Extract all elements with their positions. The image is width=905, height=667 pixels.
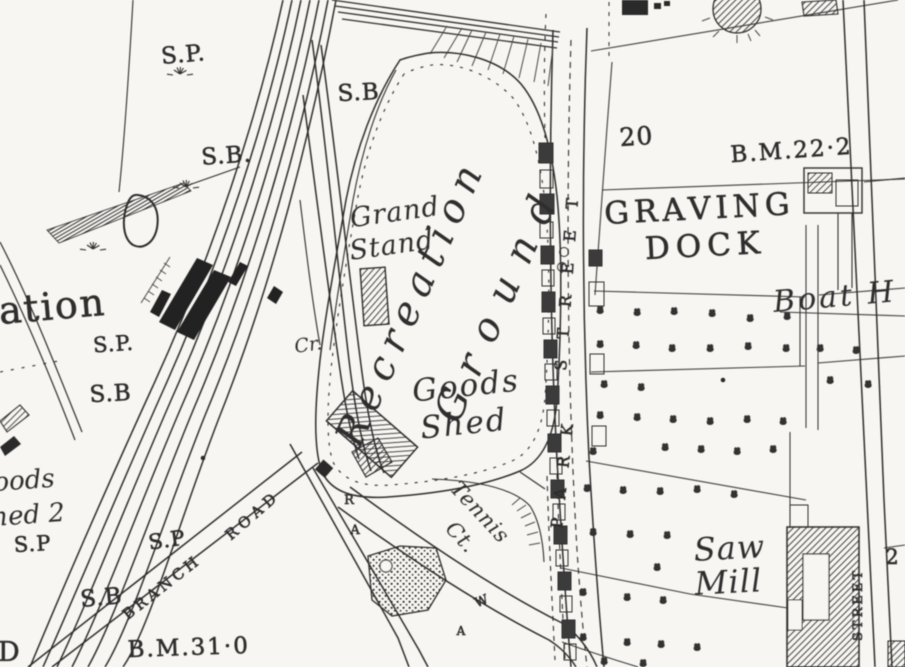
tree-symbol — [747, 314, 754, 322]
tree-symbol — [633, 341, 640, 349]
label-goods-shed2-line1: oods — [0, 464, 56, 498]
tree-symbol — [597, 411, 604, 419]
label-plot-number-2: 2 — [885, 545, 898, 569]
label-station-name-fragment: ation — [0, 280, 108, 333]
label-road-letter-a1: A — [349, 523, 360, 538]
tree-symbol — [853, 346, 860, 354]
label-crane-abbrev: Cr. — [293, 332, 323, 358]
tree-symbol — [707, 417, 714, 425]
tree-symbol — [865, 380, 872, 388]
label-bm-31: B.M.31·0 — [127, 633, 250, 663]
tree-symbol — [584, 484, 591, 492]
tree-symbol — [694, 485, 701, 493]
tree-symbol — [624, 638, 631, 646]
tree-symbol — [654, 563, 661, 571]
tree-symbol — [770, 445, 777, 453]
label-sb-1: S.B. — [200, 141, 252, 170]
tree-symbol — [620, 486, 627, 494]
tree-symbol — [709, 309, 716, 317]
tree-symbol — [707, 344, 714, 352]
tree-symbol — [657, 487, 664, 495]
tree-symbol — [658, 640, 665, 648]
tree-symbol — [664, 531, 671, 539]
tree-symbol — [627, 530, 634, 538]
label-letter-fragment-d: D — [0, 637, 20, 667]
label-road-letter-a2: A — [456, 624, 466, 638]
tree-symbol — [744, 415, 751, 423]
tree-symbol — [670, 415, 677, 423]
tree-symbol — [601, 657, 608, 665]
tree-symbol — [745, 342, 752, 350]
tree-symbol — [597, 306, 604, 314]
tree-symbol — [590, 528, 597, 536]
label-plot-number-20: 20 — [619, 121, 655, 152]
tree-symbol — [662, 443, 669, 451]
tree-symbol — [590, 447, 597, 455]
label-sp-1: S.P. — [160, 40, 206, 70]
tree-symbol — [734, 447, 741, 455]
label-sp-3: S.P — [13, 531, 52, 557]
map-canvas: S.P.S.B.S.BationS.P.S.Boodshed 2S.PS.PS.… — [0, 0, 905, 667]
label-street-east: STREET — [851, 568, 866, 641]
tree-symbol — [634, 413, 641, 421]
label-sb-4: S.B — [79, 583, 123, 613]
label-sb-2: S.B — [337, 79, 380, 107]
paper-background — [0, 0, 905, 667]
tree-symbol — [731, 490, 738, 498]
tree-symbol — [669, 344, 676, 352]
tree-symbol — [817, 344, 824, 352]
tree-symbol — [827, 376, 834, 384]
label-goods-shed2-line2: hed 2 — [0, 498, 66, 533]
tree-symbol — [783, 344, 790, 352]
label-graving-dock-line2: DOCK — [644, 225, 767, 267]
tree-symbol — [580, 633, 587, 641]
label-sb-3: S.B — [89, 380, 132, 408]
tree-symbol — [694, 643, 701, 651]
tree-symbol — [660, 596, 667, 604]
tree-symbol — [580, 588, 587, 596]
tree-symbol — [634, 308, 641, 316]
tree-symbol — [601, 380, 608, 388]
tree-symbol — [640, 659, 647, 667]
tree-symbol — [597, 340, 604, 348]
survey-dot — [201, 456, 206, 461]
tree-symbol — [698, 445, 705, 453]
tree-symbol — [624, 593, 631, 601]
label-sp-2: S.P. — [92, 331, 134, 358]
tree-symbol — [638, 383, 645, 391]
corner-building — [888, 641, 905, 667]
label-saw-mill-line2: Mill — [693, 561, 763, 603]
tree-symbol — [780, 417, 787, 425]
label-road-letter-r: R — [344, 493, 355, 508]
tree-symbol — [671, 307, 678, 315]
saw-mill-building — [787, 505, 859, 667]
os-map-scan: S.P.S.B.S.BationS.P.S.Boodshed 2S.PS.PS.… — [0, 0, 905, 667]
survey-dot — [721, 378, 726, 383]
